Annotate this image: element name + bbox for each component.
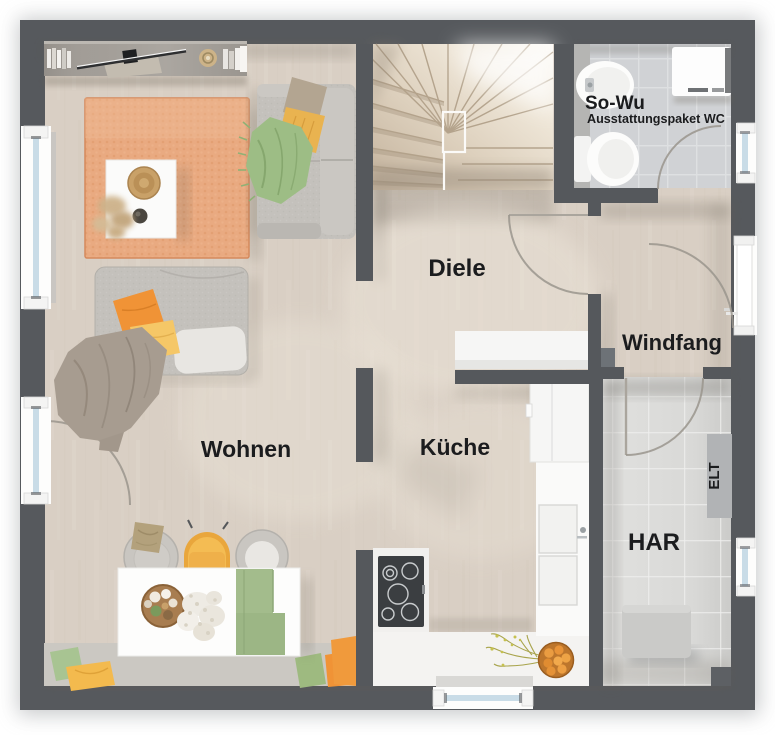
- svg-text:Wohnen: Wohnen: [201, 436, 291, 462]
- svg-text:HAR: HAR: [628, 529, 680, 556]
- svg-text:Ausstattungspaket WC: Ausstattungspaket WC: [587, 112, 725, 126]
- svg-text:ELT: ELT: [706, 462, 723, 489]
- svg-text:Diele: Diele: [428, 255, 485, 282]
- svg-text:Windfang: Windfang: [622, 330, 722, 355]
- svg-text:Küche: Küche: [420, 434, 490, 460]
- svg-text:So-Wu: So-Wu: [585, 93, 645, 114]
